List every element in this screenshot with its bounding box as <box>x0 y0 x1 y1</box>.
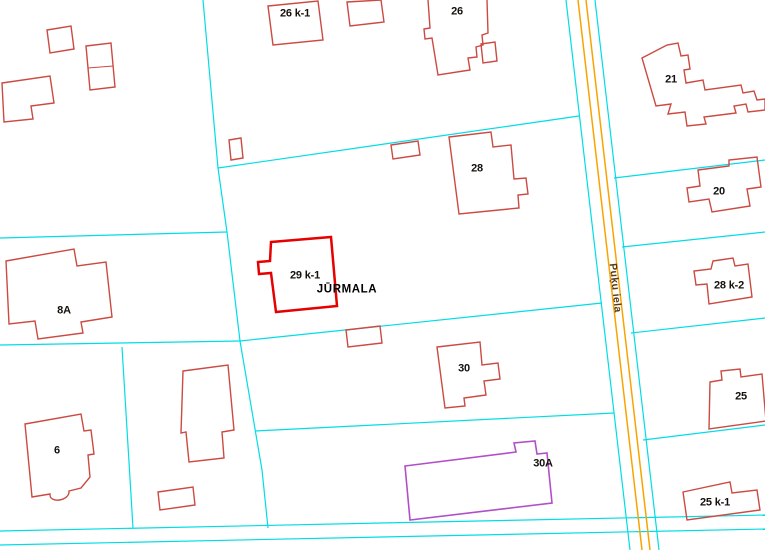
house-g[interactable] <box>229 138 243 160</box>
house-b-wall <box>88 66 113 68</box>
building-21[interactable] <box>642 43 765 126</box>
city-name-label: JŪRMALA <box>317 284 377 296</box>
parcel-boundary-line <box>0 232 227 238</box>
parcel-boundary-line <box>622 232 765 247</box>
building-8a[interactable] <box>6 249 112 339</box>
building-30[interactable] <box>437 342 500 408</box>
parcel-boundary-line <box>643 425 765 440</box>
house-h[interactable] <box>391 141 420 159</box>
label-building-25-k-1: 25 k-1 <box>700 498 730 509</box>
building-6[interactable] <box>25 414 94 500</box>
building-30a[interactable] <box>405 441 552 520</box>
label-building-20: 20 <box>713 187 725 198</box>
parcel-boundary-line <box>255 413 614 431</box>
label-building-30a: 30A <box>533 459 553 470</box>
label-building-29-k-1: 29 k-1 <box>290 271 320 282</box>
label-building-28: 28 <box>471 164 483 175</box>
label-building-6: 6 <box>54 446 60 457</box>
house-e[interactable] <box>158 487 195 510</box>
house-d[interactable] <box>181 365 234 462</box>
parcel-boundary-line <box>631 318 765 333</box>
house-i[interactable] <box>346 326 382 347</box>
parcel-boundary-line <box>0 341 240 345</box>
map-viewport[interactable]: 26 k-12621282029 k-1JŪRMALA28 k-28A30256… <box>0 0 765 550</box>
cadastral-map-canvas[interactable] <box>0 0 765 550</box>
label-building-25: 25 <box>735 392 747 403</box>
parcel-boundary-line <box>122 347 133 528</box>
label-building-8a: 8A <box>57 306 71 317</box>
parcel-boundary-line <box>218 116 579 168</box>
label-building-21: 21 <box>665 75 677 86</box>
house-f[interactable] <box>347 0 384 26</box>
building-28[interactable] <box>449 132 528 214</box>
house-c[interactable] <box>2 76 54 122</box>
parcel-boundary-line <box>0 515 765 531</box>
parcel-boundary-line <box>566 0 630 550</box>
label-building-28-k-2: 28 k-2 <box>714 281 744 292</box>
label-building-30: 30 <box>458 364 470 375</box>
parcel-boundary-line <box>240 303 602 341</box>
label-building-26: 26 <box>451 7 463 18</box>
parcel-boundary-line <box>614 160 765 178</box>
house-a[interactable] <box>47 26 74 53</box>
parcel-boundary-line <box>0 529 765 545</box>
label-building-26-k-1: 26 k-1 <box>280 9 310 20</box>
